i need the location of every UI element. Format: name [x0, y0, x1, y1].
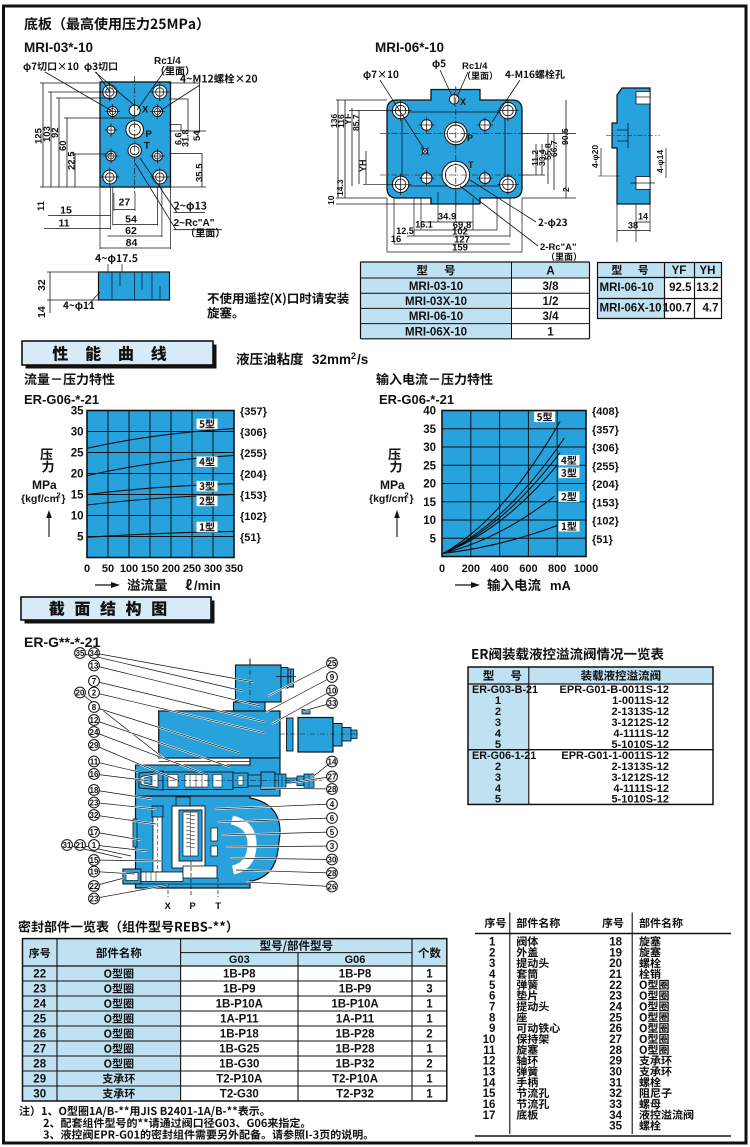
svg-text:8: 8 [92, 703, 97, 712]
svg-text:{255}: {255} [592, 461, 620, 473]
svg-text:1B-G25: 1B-G25 [219, 1044, 260, 1056]
svg-text:{51}: {51} [592, 534, 614, 546]
svg-text:MPa: MPa [380, 478, 405, 492]
svg-text:5: 5 [330, 828, 335, 837]
svg-text:/s: /s [357, 352, 368, 367]
svg-text:11: 11 [90, 757, 99, 766]
svg-text:YF: YF [672, 265, 687, 277]
svg-text:A: A [546, 266, 554, 278]
svg-text:MRI-06X-10: MRI-06X-10 [600, 303, 662, 315]
svg-text:84: 84 [126, 237, 138, 249]
svg-text:}: } [410, 493, 414, 505]
svg-text:400: 400 [490, 563, 508, 575]
svg-text:ER-G06-*-21: ER-G06-*-21 [24, 392, 99, 407]
svg-text:1: 1 [547, 326, 554, 338]
svg-text:1: 1 [426, 1044, 433, 1056]
svg-text:3: 3 [426, 984, 432, 996]
svg-text:MRI-06*-10: MRI-06*-10 [375, 40, 444, 55]
svg-text:40: 40 [423, 406, 436, 418]
svg-text:Rc1/4: Rc1/4 [462, 61, 488, 72]
svg-text:29: 29 [33, 1074, 46, 1086]
svg-text:1B-P9: 1B-P9 [223, 984, 256, 996]
svg-text:}: } [62, 493, 66, 505]
svg-text:25: 25 [328, 659, 337, 668]
svg-text:{153}: {153} [240, 490, 268, 502]
svg-text:23: 23 [33, 984, 46, 996]
svg-text:32mm: 32mm [312, 352, 351, 367]
svg-text:35.5: 35.5 [195, 163, 206, 182]
svg-text:1A-P11: 1A-P11 [220, 1014, 259, 1026]
svg-text:X: X [142, 105, 149, 116]
svg-text:2: 2 [405, 491, 409, 500]
svg-text:{204}: {204} [592, 479, 620, 491]
svg-text:T: T [468, 160, 474, 170]
svg-text:1B-P9: 1B-P9 [339, 984, 372, 996]
svg-text:159: 159 [452, 243, 468, 254]
svg-text:18: 18 [90, 786, 99, 795]
svg-text:19: 19 [90, 867, 99, 876]
svg-text:1B-P28: 1B-P28 [336, 1044, 376, 1056]
svg-text:2: 2 [561, 187, 571, 192]
svg-text:16: 16 [391, 234, 402, 245]
svg-text:YH: YH [700, 265, 716, 277]
svg-text:4-φ14: 4-φ14 [655, 150, 665, 173]
svg-text:10: 10 [328, 686, 337, 695]
svg-text:T2-G30: T2-G30 [220, 1089, 259, 1101]
svg-text:10: 10 [71, 511, 84, 523]
svg-text:38: 38 [628, 221, 638, 231]
svg-text:{51}: {51} [240, 532, 262, 544]
svg-text:100: 100 [120, 563, 138, 575]
svg-text:{306}: {306} [592, 443, 620, 455]
svg-text:ER-G**-*-21: ER-G**-*-21 [24, 634, 100, 650]
svg-text:5: 5 [77, 532, 84, 544]
svg-text:20: 20 [71, 469, 84, 481]
svg-text:16: 16 [90, 770, 99, 779]
svg-text:30: 30 [33, 1089, 46, 1101]
svg-text:13.2: 13.2 [696, 282, 718, 294]
svg-text:MRI-06-10: MRI-06-10 [600, 282, 654, 294]
svg-text:85.7: 85.7 [351, 114, 361, 131]
svg-text:25: 25 [33, 1014, 46, 1026]
svg-text:ER-G06-*-21: ER-G06-*-21 [379, 392, 454, 407]
svg-text:14: 14 [328, 757, 337, 766]
svg-text:4: 4 [330, 800, 335, 809]
svg-text:66.7: 66.7 [549, 140, 559, 157]
svg-text:G03: G03 [229, 954, 250, 966]
svg-text:G06: G06 [345, 954, 366, 966]
svg-text:mA: mA [550, 578, 572, 593]
svg-text:P: P [467, 133, 473, 143]
svg-text:3/8: 3/8 [543, 281, 560, 293]
svg-text:{255}: {255} [240, 448, 268, 460]
svg-text:{102}: {102} [592, 516, 620, 528]
svg-text:22: 22 [90, 882, 99, 891]
svg-text:13: 13 [90, 661, 99, 670]
svg-text:24: 24 [90, 728, 99, 737]
svg-text:28: 28 [328, 785, 337, 794]
svg-text:MRI-06X-10: MRI-06X-10 [405, 326, 467, 338]
svg-text:9: 9 [330, 673, 335, 682]
svg-text:14: 14 [638, 212, 648, 222]
svg-text:25: 25 [71, 448, 84, 460]
svg-text:/min: /min [194, 578, 221, 593]
svg-text:1B-G30: 1B-G30 [219, 1059, 259, 1071]
svg-text:15: 15 [423, 497, 436, 509]
svg-text:15: 15 [90, 856, 99, 865]
svg-text:11: 11 [36, 200, 47, 211]
svg-text:2: 2 [92, 688, 97, 697]
svg-text:23: 23 [90, 894, 99, 903]
svg-text:32: 32 [90, 811, 99, 820]
svg-text:MRI-06-10: MRI-06-10 [409, 311, 463, 323]
svg-text:MRI-03X-10: MRI-03X-10 [405, 296, 467, 308]
svg-text:1B-P32: 1B-P32 [336, 1059, 375, 1071]
svg-text:35: 35 [76, 649, 85, 658]
svg-text:30: 30 [423, 442, 436, 454]
svg-text:2~Rc"A": 2~Rc"A" [174, 218, 215, 229]
svg-text:{204}: {204} [240, 469, 268, 481]
svg-text:1B-P10A: 1B-P10A [216, 999, 263, 1011]
svg-text:1B-P18: 1B-P18 [220, 1029, 260, 1041]
svg-text:1: 1 [426, 969, 433, 981]
svg-text:12: 12 [90, 716, 99, 725]
svg-text:4.7: 4.7 [703, 303, 719, 315]
svg-text:{408}: {408} [592, 406, 620, 418]
svg-text:10: 10 [326, 195, 336, 205]
svg-text:600: 600 [519, 563, 537, 575]
svg-text:{kgf/cm: {kgf/cm [369, 493, 407, 505]
svg-text:ER-G06-1-21: ER-G06-1-21 [472, 750, 536, 762]
svg-text:26: 26 [33, 1029, 46, 1041]
svg-text:T: T [215, 901, 221, 912]
svg-text:150: 150 [141, 563, 159, 575]
svg-text:27: 27 [33, 1044, 46, 1056]
svg-text:92: 92 [50, 127, 61, 138]
svg-text:1: 1 [92, 841, 97, 850]
svg-text:0: 0 [439, 563, 445, 575]
svg-text:2-Rc"A": 2-Rc"A" [540, 242, 576, 253]
svg-text:P: P [189, 901, 196, 912]
svg-text:2: 2 [351, 351, 356, 361]
svg-text:15: 15 [60, 205, 72, 217]
svg-text:X: X [165, 901, 172, 912]
svg-text:35: 35 [423, 424, 436, 436]
svg-text:54: 54 [192, 130, 203, 141]
svg-text:6: 6 [330, 814, 335, 823]
svg-text:32: 32 [36, 279, 48, 291]
svg-text:20: 20 [76, 688, 85, 697]
svg-text:14.3: 14.3 [335, 179, 345, 196]
svg-text:T2-P10A: T2-P10A [332, 1074, 378, 1086]
svg-text:90.5: 90.5 [560, 128, 570, 145]
svg-text:7: 7 [92, 677, 97, 686]
svg-text:{306}: {306} [240, 427, 268, 439]
svg-text:22: 22 [33, 969, 46, 981]
svg-text:100.7: 100.7 [663, 303, 692, 315]
svg-text:11: 11 [58, 218, 69, 230]
svg-text:31.8: 31.8 [181, 129, 191, 147]
svg-text:ER-G03-B-21: ER-G03-B-21 [472, 684, 538, 696]
svg-text:17: 17 [90, 828, 99, 837]
svg-text:T: T [144, 141, 150, 152]
svg-text:3/4: 3/4 [543, 311, 560, 323]
svg-text:1000: 1000 [574, 563, 598, 575]
svg-text:{153}: {153} [592, 497, 620, 509]
svg-text:54: 54 [125, 214, 137, 226]
svg-text:P: P [146, 129, 153, 140]
svg-text:31: 31 [63, 841, 72, 850]
svg-text:22.5: 22.5 [67, 151, 78, 170]
svg-text:MRI-03*-10: MRI-03*-10 [24, 40, 93, 55]
svg-text:3: 3 [330, 842, 335, 851]
svg-text:28: 28 [33, 1059, 46, 1071]
svg-text:24: 24 [33, 999, 46, 1011]
svg-text:1/2: 1/2 [543, 296, 559, 308]
svg-text:35: 35 [71, 406, 84, 418]
svg-text:4-φ20: 4-φ20 [590, 145, 600, 168]
svg-text:250: 250 [183, 563, 201, 575]
svg-text:0: 0 [84, 563, 90, 575]
svg-text:MRI-03-10: MRI-03-10 [409, 281, 463, 293]
svg-text:28: 28 [328, 869, 337, 878]
svg-text:X: X [460, 97, 466, 107]
svg-text:27: 27 [119, 197, 131, 209]
svg-text:30: 30 [328, 855, 337, 864]
svg-text:15: 15 [71, 490, 84, 502]
svg-text:1: 1 [426, 1089, 433, 1101]
svg-text:YH: YH [358, 159, 368, 172]
svg-text:17: 17 [483, 1110, 496, 1122]
svg-text:350: 350 [225, 563, 243, 575]
svg-text:{kgf/cm: {kgf/cm [21, 493, 59, 505]
svg-text:25: 25 [423, 460, 436, 472]
svg-text:{102}: {102} [240, 511, 268, 523]
svg-text:1: 1 [426, 1014, 433, 1026]
svg-text:27: 27 [328, 772, 337, 781]
svg-text:62: 62 [125, 225, 137, 237]
svg-text:35: 35 [609, 1121, 622, 1133]
svg-text:1B-P8: 1B-P8 [339, 969, 372, 981]
svg-text:26: 26 [328, 882, 337, 891]
svg-text:{357}: {357} [592, 424, 620, 436]
svg-text:1B-P28: 1B-P28 [336, 1029, 376, 1041]
svg-text:33: 33 [328, 699, 337, 708]
svg-text:1: 1 [426, 1074, 433, 1086]
svg-text:1B-P8: 1B-P8 [223, 969, 256, 981]
svg-text:800: 800 [548, 563, 566, 575]
svg-text:T2-P10A: T2-P10A [216, 1074, 262, 1086]
svg-text:Rc1/4: Rc1/4 [154, 56, 181, 67]
svg-text:10: 10 [423, 515, 436, 527]
svg-text:1: 1 [426, 999, 433, 1011]
svg-text:30: 30 [71, 427, 84, 439]
svg-text:5: 5 [430, 533, 437, 545]
svg-text:34: 34 [90, 649, 99, 658]
svg-text:300: 300 [204, 563, 222, 575]
svg-text:MPa: MPa [32, 478, 57, 492]
svg-text:92.5: 92.5 [669, 282, 692, 294]
svg-text:60: 60 [58, 140, 69, 151]
svg-text:2: 2 [57, 491, 61, 500]
svg-text:14: 14 [36, 306, 48, 318]
svg-text:T2-P32: T2-P32 [336, 1089, 374, 1101]
svg-text:2: 2 [426, 1029, 432, 1041]
svg-text:200: 200 [462, 563, 480, 575]
svg-text:2: 2 [426, 1059, 432, 1071]
svg-text:20: 20 [423, 479, 436, 491]
svg-text:50: 50 [102, 563, 114, 575]
svg-text:16.1: 16.1 [415, 220, 433, 230]
svg-text:21: 21 [76, 841, 85, 850]
svg-text:1A-P11: 1A-P11 [336, 1014, 375, 1026]
svg-text:23: 23 [90, 798, 99, 807]
svg-text:29: 29 [90, 741, 99, 750]
svg-text:200: 200 [162, 563, 180, 575]
svg-text:1B-P10A: 1B-P10A [331, 999, 378, 1011]
svg-text:{357}: {357} [240, 406, 268, 418]
